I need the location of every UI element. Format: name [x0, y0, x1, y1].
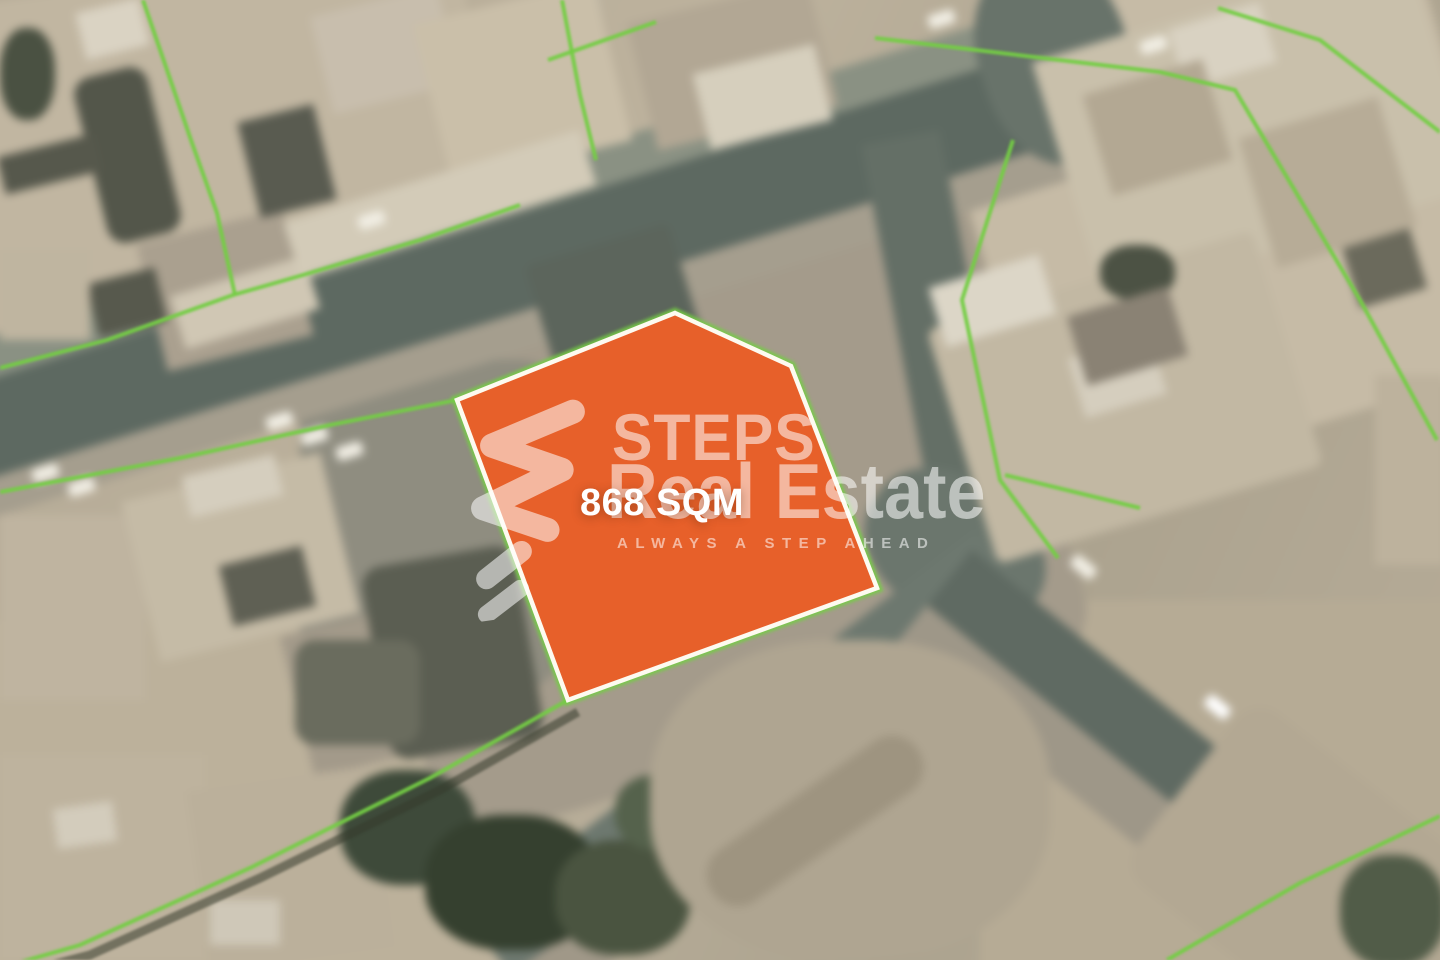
brand-tagline: ALWAYS A STEP AHEAD	[617, 536, 935, 551]
map-canvas: STEPS Real Estate ALWAYS A STEP AHEAD 86…	[0, 0, 1440, 960]
brand-watermark: STEPS Real Estate ALWAYS A STEP AHEAD	[0, 0, 1440, 960]
plot-area-label: 868 SQM	[580, 484, 744, 522]
